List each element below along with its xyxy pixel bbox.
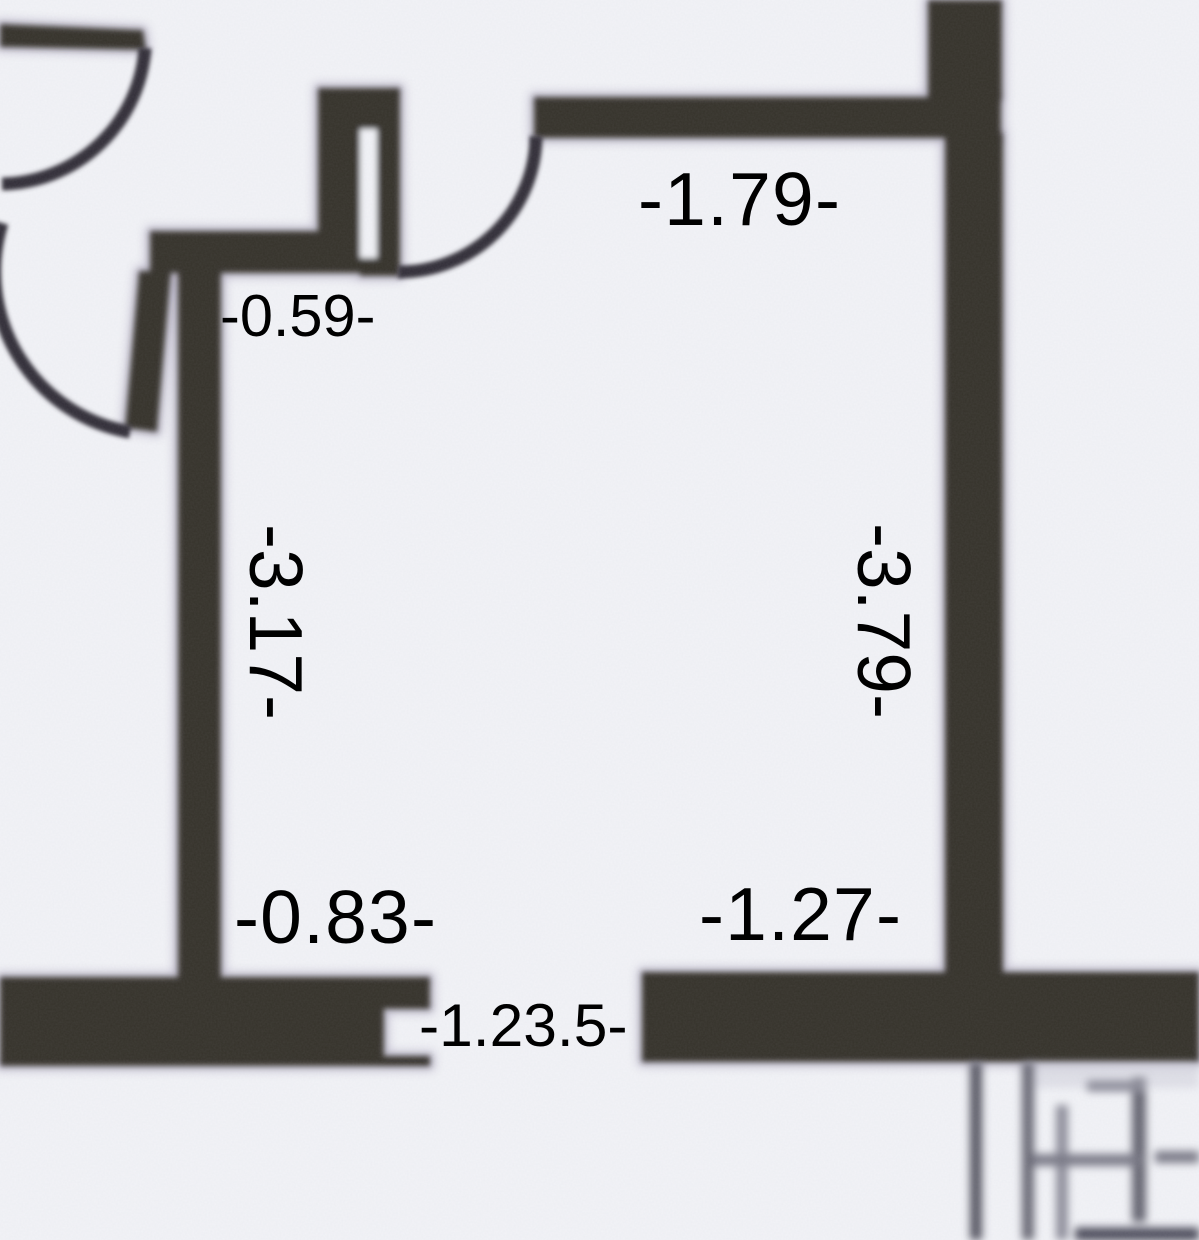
svg-text:-1.79-: -1.79-	[638, 157, 841, 241]
svg-text:-1.23.5-: -1.23.5-	[419, 991, 628, 1059]
svg-text:-3.79-: -3.79-	[842, 523, 926, 719]
svg-text:-1.27-: -1.27-	[699, 872, 902, 956]
svg-text:-0.59-: -0.59-	[220, 282, 375, 349]
svg-text:-3.17-: -3.17-	[234, 524, 318, 720]
svg-text:-0.83-: -0.83-	[234, 875, 437, 959]
